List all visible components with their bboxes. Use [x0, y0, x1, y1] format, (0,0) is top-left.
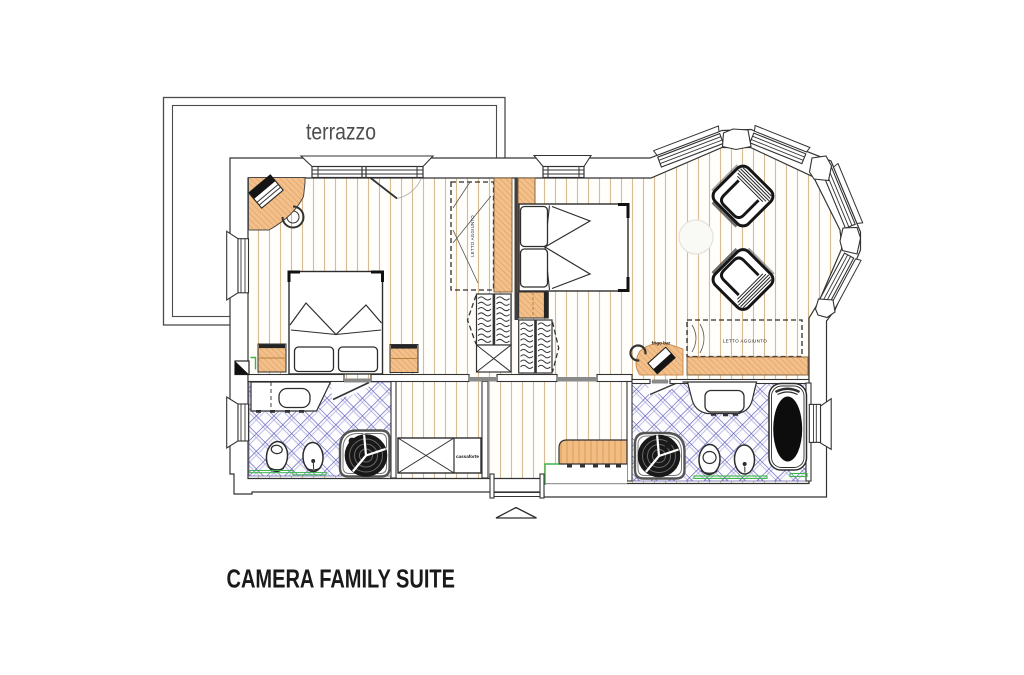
svg-text:cassaforte: cassaforte [456, 454, 479, 459]
svg-text:CAMERA FAMILY SUITE: CAMERA FAMILY SUITE [227, 564, 456, 594]
svg-text:frigo bar: frigo bar [652, 341, 671, 346]
svg-text:LETTO AGGIUNTO: LETTO AGGIUNTO [470, 215, 475, 257]
svg-text:terrazzo: terrazzo [306, 119, 376, 145]
svg-text:LETTO AGGIUNTO: LETTO AGGIUNTO [723, 339, 767, 344]
